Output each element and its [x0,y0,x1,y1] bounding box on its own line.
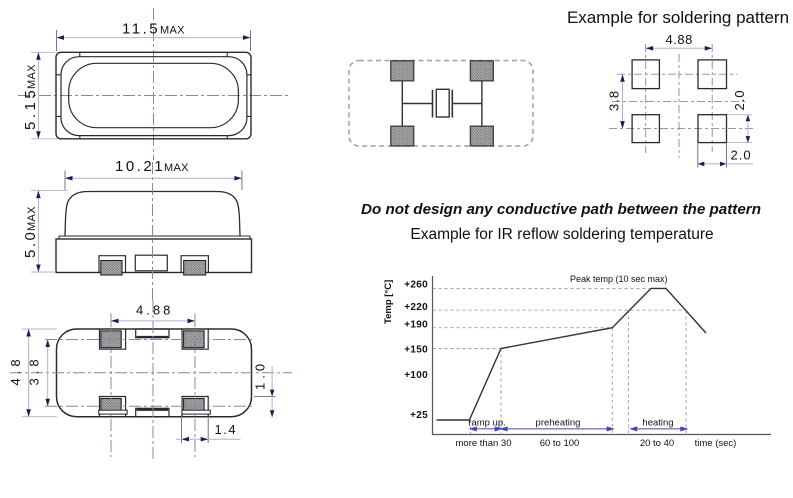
svg-text:20 to 40: 20 to 40 [640,438,674,449]
svg-text:11.5: 11.5 [122,21,160,38]
svg-text:Example for IR reflow solderin: Example for IR reflow soldering temperat… [410,226,713,243]
svg-text:+100: +100 [404,370,428,381]
svg-text:3.8: 3.8 [27,355,42,385]
svg-text:Example for soldering pattern: Example for soldering pattern [567,8,789,27]
svg-text:ramp up.: ramp up. [468,418,506,429]
svg-text:3.8: 3.8 [607,90,622,111]
svg-text:5.15: 5.15 [22,87,39,130]
svg-text:+25: +25 [410,410,428,421]
svg-text:+150: +150 [404,345,428,356]
svg-text:2.0: 2.0 [732,89,747,110]
svg-text:+220: +220 [404,302,428,313]
svg-text:4.88: 4.88 [136,303,173,318]
svg-text:Temp [°C]: Temp [°C] [383,280,394,324]
svg-text:time (sec): time (sec) [695,438,737,449]
svg-text:MAX: MAX [26,206,38,231]
svg-text:10.21: 10.21 [115,158,165,175]
svg-text:Do not design any conductive p: Do not design any conductive path betwee… [361,201,761,218]
svg-text:MAX: MAX [26,64,38,89]
svg-text:5.0: 5.0 [22,230,39,258]
svg-text:2.0: 2.0 [731,148,752,163]
svg-text:heating: heating [642,418,673,429]
svg-text:preheating: preheating [536,418,581,429]
svg-text:4.88: 4.88 [666,32,693,47]
svg-text:MAX: MAX [164,162,189,174]
svg-text:1.4: 1.4 [215,422,238,437]
svg-text:MAX: MAX [160,25,185,37]
svg-text:+260: +260 [404,280,428,291]
svg-text:1.0: 1.0 [253,360,268,390]
svg-text:4.8: 4.8 [8,355,23,385]
svg-text:Peak temp (10 sec max): Peak temp (10 sec max) [570,274,668,284]
svg-text:more than 30: more than 30 [456,438,512,449]
svg-text:+190: +190 [404,320,428,331]
svg-text:60 to 100: 60 to 100 [540,438,580,449]
